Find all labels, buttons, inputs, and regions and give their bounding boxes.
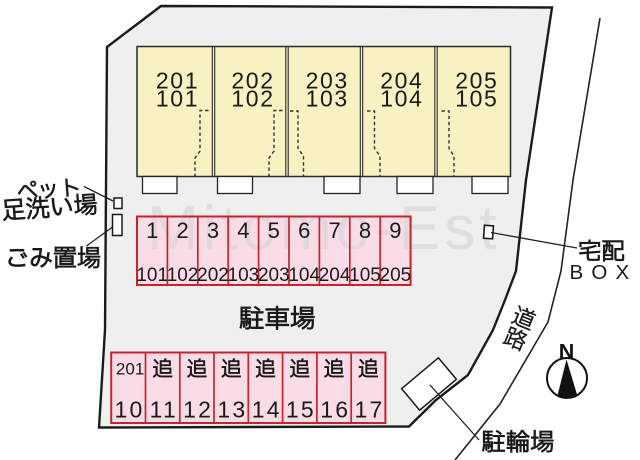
svg-text:13: 13 [217, 397, 247, 423]
svg-text:16: 16 [320, 397, 350, 423]
svg-text:104: 104 [288, 265, 320, 286]
svg-text:101: 101 [136, 265, 168, 286]
svg-text:17: 17 [355, 397, 385, 423]
svg-text:12: 12 [183, 397, 213, 423]
svg-text:5: 5 [268, 218, 280, 243]
svg-text:6: 6 [298, 218, 310, 243]
svg-text:11: 11 [150, 397, 178, 423]
svg-text:8: 8 [359, 218, 371, 243]
svg-text:103: 103 [228, 265, 260, 286]
svg-text:101: 101 [156, 86, 199, 112]
svg-text:102: 102 [167, 265, 199, 286]
svg-text:105: 105 [349, 265, 381, 286]
svg-text:7: 7 [328, 218, 340, 243]
svg-text:103: 103 [306, 86, 349, 112]
svg-text:14: 14 [252, 397, 282, 423]
svg-text:Mitomo-Est: Mitomo-Est [147, 194, 500, 263]
svg-text:105: 105 [455, 86, 498, 112]
svg-text:15: 15 [286, 397, 316, 423]
svg-text:205: 205 [380, 265, 412, 286]
svg-text:202: 202 [197, 265, 229, 286]
svg-text:2: 2 [176, 218, 188, 243]
svg-text:4: 4 [237, 218, 249, 243]
svg-text:3: 3 [207, 218, 219, 243]
svg-text:102: 102 [231, 86, 274, 112]
svg-text:N: N [559, 340, 575, 364]
svg-text:201: 201 [116, 360, 144, 379]
svg-text:204: 204 [319, 265, 351, 286]
svg-text:9: 9 [389, 218, 401, 243]
svg-text:104: 104 [380, 86, 423, 112]
svg-text:1: 1 [146, 218, 158, 243]
svg-text:10: 10 [115, 397, 145, 423]
svg-text:BOX: BOX [570, 261, 638, 284]
svg-text:203: 203 [258, 265, 290, 286]
